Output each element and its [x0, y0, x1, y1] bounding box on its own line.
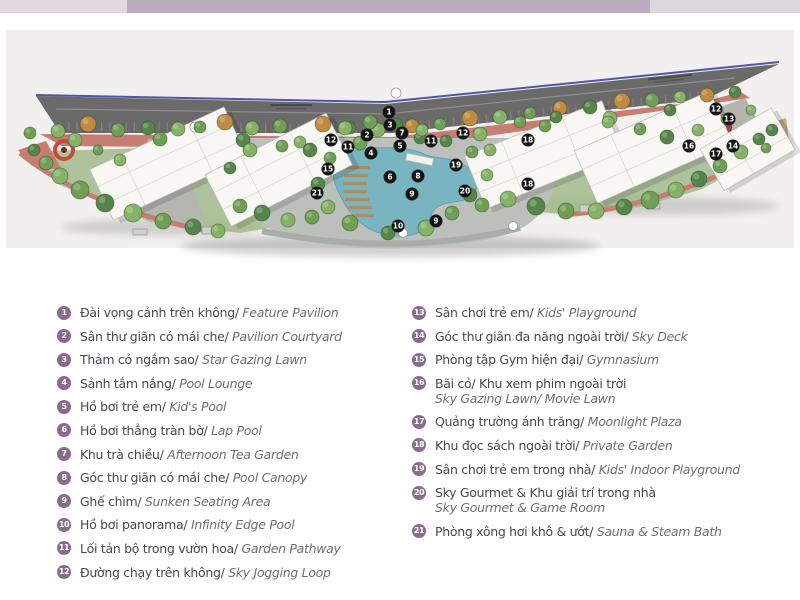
- legend-item-number: 5: [57, 400, 71, 414]
- legend-item: 19Sân chơi trẻ em trong nhà/ Kids' Indoo…: [412, 462, 764, 477]
- tree-highlight: [604, 118, 609, 123]
- tree-icon: [700, 88, 714, 102]
- legend-item: 7Khu trà chiều/ Afternoon Tea Garden: [57, 447, 409, 462]
- tree-highlight: [247, 123, 252, 128]
- tree-icon: [473, 127, 487, 141]
- tree-highlight: [317, 118, 323, 124]
- legend-item: 2Sân thư giãn có mái che/ Pavilion Court…: [57, 329, 409, 344]
- tree-icon: [80, 116, 96, 132]
- tree-highlight: [187, 221, 193, 227]
- legend-column-right: 13Sân chơi trẻ em/ Kids' Playground14Góc…: [412, 305, 764, 547]
- tree-icon: [28, 144, 40, 156]
- legend-item-label: Sân thư giãn có mái che/ Pavilion Courty…: [80, 329, 342, 344]
- legend-item: 5Hồ bơi trẻ em/ Kid's Pool: [57, 399, 409, 414]
- tree-highlight: [670, 184, 676, 190]
- legend-item-number: 4: [57, 376, 71, 390]
- map-marker-number: 15: [323, 165, 333, 174]
- legend-item: 21Phòng xông hơi khô & ướt/ Sauna & Stea…: [412, 524, 764, 539]
- tree-highlight: [99, 197, 106, 204]
- tree-highlight: [407, 121, 412, 126]
- tree-icon: [111, 123, 125, 137]
- legend-item-number: 2: [57, 329, 71, 343]
- map-marker-number: 17: [711, 150, 721, 159]
- legend-item-number: 16: [412, 376, 426, 390]
- tree-highlight: [82, 118, 88, 124]
- tree-highlight: [468, 148, 473, 153]
- tree-icon: [194, 121, 206, 133]
- tree-highlight: [483, 171, 488, 176]
- map-marker-number: 12: [711, 105, 721, 114]
- legend-item-label: Sảnh tắm nắng/ Pool Lounge: [80, 376, 252, 391]
- tree-icon: [440, 135, 452, 147]
- legend-item: 16Bãi cỏ/ Khu xem phim ngoài trờiSky Gaz…: [412, 376, 764, 406]
- tree-icon: [153, 132, 167, 146]
- legend-item-number: 1: [57, 306, 71, 320]
- tree-highlight: [755, 135, 760, 140]
- tree-highlight: [762, 144, 766, 148]
- tree-highlight: [383, 228, 388, 233]
- tree-highlight: [143, 123, 148, 128]
- legend-item: 6Hồ bơi thẳng tràn bờ/ Lap Pool: [57, 423, 409, 438]
- legend-item-number: 14: [412, 329, 426, 343]
- tree-highlight: [694, 126, 699, 131]
- tree-icon: [766, 124, 778, 136]
- legend-item: 4Sảnh tắm nắng/ Pool Lounge: [57, 376, 409, 391]
- tree-icon: [466, 146, 478, 158]
- legend-item: 12Đường chạy trên không/ Sky Jogging Loo…: [57, 565, 409, 580]
- tree-icon: [692, 124, 704, 136]
- tree-highlight: [502, 193, 508, 199]
- tree-highlight: [747, 106, 751, 110]
- map-marker-number: 19: [451, 161, 461, 170]
- tree-icon: [664, 104, 676, 116]
- tree-highlight: [30, 146, 35, 151]
- tree-icon: [668, 182, 684, 198]
- tree-icon: [315, 116, 331, 132]
- tree-icon: [224, 162, 236, 174]
- tree-icon: [243, 143, 257, 157]
- legend-item-label: Đường chạy trên không/ Sky Jogging Loop: [80, 565, 331, 580]
- legend-column-left: 1Đài vọng cảnh trên không/ Feature Pavil…: [57, 305, 409, 588]
- tree-icon: [155, 213, 171, 229]
- tree-highlight: [662, 132, 667, 137]
- tree-icon: [761, 143, 771, 153]
- map-marker-number: 8: [415, 172, 420, 181]
- map-marker-number: 10: [393, 222, 403, 231]
- tree-highlight: [702, 90, 707, 95]
- tree-highlight: [26, 129, 31, 134]
- tree-icon: [39, 156, 53, 170]
- tree-icon: [141, 121, 155, 135]
- tree-highlight: [530, 200, 537, 207]
- tree-icon: [416, 124, 428, 136]
- map-marker-number: 2: [364, 131, 369, 140]
- tree-highlight: [296, 138, 301, 143]
- tree-highlight: [326, 154, 331, 159]
- legend-item: 10Hồ bơi panorama/ Infinity Edge Pool: [57, 517, 409, 532]
- tree-icon: [660, 130, 674, 144]
- tree-icon: [185, 219, 201, 235]
- legend-item-label: Hồ bơi thẳng tràn bờ/ Lap Pool: [80, 423, 262, 438]
- legend-item-label: Đài vọng cảnh trên không/ Feature Pavili…: [80, 305, 338, 320]
- tree-highlight: [636, 125, 641, 130]
- tree-highlight: [155, 134, 160, 139]
- tree-icon: [93, 145, 103, 155]
- tree-highlight: [245, 145, 250, 150]
- tree-icon: [527, 197, 545, 215]
- map-marker-number: 18: [523, 136, 533, 145]
- legend-item-label: Khu trà chiều/ Afternoon Tea Garden: [80, 447, 299, 462]
- tree-highlight: [355, 138, 360, 143]
- tree-icon: [462, 110, 478, 126]
- tree-highlight: [666, 106, 671, 111]
- tree-icon: [233, 199, 247, 213]
- legend-item-number: 13: [412, 306, 426, 320]
- map-marker-number: 6: [387, 173, 392, 182]
- tree-icon: [558, 203, 574, 219]
- tree-highlight: [113, 125, 118, 130]
- legend-item-label: Phòng tập Gym hiện đại/ Gymnasium: [435, 352, 659, 367]
- legend-item: 9Ghế chìm/ Sunken Seating Area: [57, 494, 409, 509]
- tree-highlight: [618, 201, 624, 207]
- tree-icon: [338, 121, 352, 135]
- legend-item-label: Quảng trường ánh trăng/ Moonlight Plaza: [435, 414, 682, 429]
- tree-icon: [342, 215, 358, 231]
- tree-icon: [445, 206, 459, 220]
- tree-icon: [713, 159, 727, 173]
- tree-icon: [281, 213, 295, 227]
- tree-highlight: [693, 173, 699, 179]
- tree-icon: [753, 133, 765, 145]
- tree-icon: [321, 200, 335, 214]
- tree-icon: [539, 120, 551, 132]
- legend-item-number: 9: [57, 494, 71, 508]
- legend-item-label: Lối tản bộ trong vườn hoa/ Garden Pathwa…: [80, 541, 341, 556]
- tree-icon: [96, 194, 114, 212]
- legend-item-label: Sky Gourmet & Khu giải trí trong nhàSky …: [435, 485, 656, 515]
- tree-icon: [524, 107, 536, 119]
- legend-item-number: 10: [57, 518, 71, 532]
- tree-highlight: [196, 123, 201, 128]
- tree-highlight: [526, 109, 531, 114]
- legend-item-label: Góc thư giãn đa năng ngoài trời/ Sky Dec…: [435, 329, 687, 344]
- tree-highlight: [516, 118, 521, 123]
- tree-icon: [68, 133, 82, 147]
- tree-highlight: [238, 135, 243, 140]
- tree-highlight: [41, 158, 46, 163]
- legend-item-label: Phòng xông hơi khô & ướt/ Sauna & Steam …: [435, 524, 722, 539]
- tree-highlight: [644, 194, 651, 201]
- legend-item: 11Lối tản bộ trong vườn hoa/ Garden Path…: [57, 541, 409, 556]
- tree-highlight: [94, 146, 98, 150]
- tree-icon: [484, 144, 496, 156]
- tree-highlight: [275, 121, 280, 126]
- tree-icon: [614, 93, 630, 109]
- road-label-smudge: [270, 104, 312, 106]
- tree-highlight: [616, 95, 622, 101]
- tree-highlight: [283, 215, 288, 220]
- tree-icon: [588, 203, 604, 219]
- tree-icon: [729, 86, 741, 98]
- tree-icon: [691, 171, 707, 187]
- tree-highlight: [731, 88, 736, 93]
- legend-item-number: 19: [412, 462, 426, 476]
- tree-highlight: [464, 112, 470, 118]
- tree-highlight: [475, 129, 480, 134]
- legend-item-number: 21: [412, 524, 426, 538]
- map-marker-number: 5: [397, 142, 402, 151]
- legend-item: 18Khu đọc sách ngoài trời/ Private Garde…: [412, 438, 764, 453]
- tree-icon: [171, 122, 185, 136]
- tree-highlight: [486, 146, 491, 151]
- legend-item-label: Sân chơi trẻ em trong nhà/ Kids' Indoor …: [435, 462, 740, 477]
- tree-icon: [616, 199, 632, 215]
- map-marker-number: 11: [426, 137, 436, 146]
- tree-icon: [211, 224, 225, 238]
- map-marker-number: 1: [386, 108, 391, 117]
- legend-item-number: 15: [412, 353, 426, 367]
- tree-highlight: [213, 226, 218, 231]
- tree-highlight: [307, 212, 312, 217]
- map-marker-number: 12: [326, 136, 336, 145]
- tree-highlight: [226, 164, 231, 169]
- tree-icon: [276, 140, 288, 152]
- legend-item: 13Sân chơi trẻ em/ Kids' Playground: [412, 305, 764, 320]
- legend-item-number: 6: [57, 423, 71, 437]
- legend-item-label: Ghế chìm/ Sunken Seating Area: [80, 494, 270, 509]
- map-marker-number: 16: [684, 142, 694, 151]
- tree-highlight: [555, 103, 560, 108]
- tree-highlight: [256, 207, 262, 213]
- tree-icon: [746, 105, 756, 115]
- tree-icon: [602, 116, 614, 128]
- legend-item-number: 8: [57, 471, 71, 485]
- legend-item-label: Sân chơi trẻ em/ Kids' Playground: [435, 305, 636, 320]
- tree-icon: [52, 168, 68, 184]
- tree-highlight: [436, 120, 441, 125]
- tree-highlight: [442, 137, 447, 142]
- tree-icon: [24, 127, 36, 139]
- map-marker-number: 11: [343, 143, 353, 152]
- map-marker-number: 13: [724, 115, 734, 124]
- tree-icon: [500, 191, 516, 207]
- tree-highlight: [344, 217, 350, 223]
- tree-highlight: [676, 93, 681, 98]
- map-marker-number: 9: [433, 217, 438, 226]
- tree-highlight: [477, 200, 482, 205]
- tree-highlight: [447, 208, 452, 213]
- tree-icon: [475, 198, 489, 212]
- tree-highlight: [768, 126, 773, 131]
- tree-highlight: [585, 102, 590, 107]
- legend-item-label: Bãi cỏ/ Khu xem phim ngoài trờiSky Gazin…: [435, 376, 626, 406]
- map-marker-number: 18: [523, 180, 533, 189]
- tree-highlight: [495, 112, 500, 117]
- tree-highlight: [219, 116, 225, 122]
- legend-item-label: Khu đọc sách ngoài trời/ Private Garden: [435, 438, 672, 453]
- tree-highlight: [418, 126, 423, 131]
- tree-highlight: [305, 145, 310, 150]
- tree-highlight: [647, 95, 652, 100]
- tree-highlight: [420, 222, 426, 228]
- map-marker-number: 20: [460, 187, 470, 196]
- tree-highlight: [70, 135, 75, 140]
- tree-icon: [124, 204, 142, 222]
- tree-icon: [114, 154, 126, 166]
- tree-icon: [51, 124, 65, 138]
- legend-item-number: 11: [57, 541, 71, 555]
- tree-icon: [583, 100, 597, 114]
- legend-item: 15Phòng tập Gym hiện đại/ Gymnasium: [412, 352, 764, 367]
- tree-highlight: [235, 201, 240, 206]
- tree-icon: [645, 93, 659, 107]
- map-marker-number: 9: [409, 190, 414, 199]
- legend-item-number: 12: [57, 565, 71, 579]
- tree-highlight: [74, 184, 81, 191]
- tree-highlight: [173, 124, 178, 129]
- tree-icon: [305, 210, 319, 224]
- tree-highlight: [157, 215, 163, 221]
- tree-highlight: [365, 117, 370, 122]
- legend-item-number: 7: [57, 447, 71, 461]
- tree-highlight: [541, 122, 546, 127]
- tree-icon: [634, 123, 646, 135]
- tree-highlight: [313, 179, 318, 184]
- tree-icon: [481, 169, 493, 181]
- tree-icon: [641, 191, 659, 209]
- legend-item-number: 3: [57, 353, 71, 367]
- tree-icon: [493, 110, 507, 124]
- tree-highlight: [340, 123, 345, 128]
- legend-item-label: Góc thư giãn có mái che/ Pool Canopy: [80, 470, 307, 485]
- legend-item: 1Đài vọng cảnh trên không/ Feature Pavil…: [57, 305, 409, 320]
- map-marker-number: 4: [368, 149, 373, 158]
- tree-highlight: [54, 170, 60, 176]
- tree-highlight: [53, 126, 58, 131]
- legend-item-number: 20: [412, 486, 426, 500]
- tree-icon: [324, 152, 336, 164]
- legend-item-number: 17: [412, 415, 426, 429]
- legend-item: 17Quảng trường ánh trăng/ Moonlight Plaz…: [412, 414, 764, 429]
- tree-highlight: [116, 156, 121, 161]
- tree-highlight: [323, 202, 328, 207]
- map-marker-number: 7: [399, 129, 404, 138]
- tree-icon: [514, 116, 526, 128]
- tree-icon: [674, 91, 686, 103]
- legend-item-label: Hồ bơi trẻ em/ Kid's Pool: [80, 399, 226, 414]
- tree-icon: [217, 114, 233, 130]
- tree-highlight: [590, 205, 596, 211]
- legend-item: 3Thảm cỏ ngắm sao/ Star Gazing Lawn: [57, 352, 409, 367]
- tree-icon: [245, 121, 259, 135]
- tree-icon: [303, 143, 317, 157]
- tree-icon: [254, 205, 270, 221]
- legend-item: 20Sky Gourmet & Khu giải trí trong nhàSk…: [412, 485, 764, 515]
- legend-item: 8Góc thư giãn có mái che/ Pool Canopy: [57, 470, 409, 485]
- tree-highlight: [127, 207, 134, 214]
- tree-icon: [363, 115, 377, 129]
- map-marker-number: 12: [458, 129, 468, 138]
- map-marker-number: 21: [312, 189, 322, 198]
- tree-icon: [71, 181, 89, 199]
- map-marker-number: 3: [387, 121, 392, 130]
- legend-item-label: Thảm cỏ ngắm sao/ Star Gazing Lawn: [80, 352, 307, 367]
- legend-item: 14Góc thư giãn đa năng ngoài trời/ Sky D…: [412, 329, 764, 344]
- tree-highlight: [560, 205, 566, 211]
- legend-item-label: Hồ bơi panorama/ Infinity Edge Pool: [80, 517, 294, 532]
- map-marker-number: 14: [728, 142, 738, 151]
- legend-item-number: 18: [412, 438, 426, 452]
- tree-highlight: [715, 161, 720, 166]
- tree-icon: [550, 111, 562, 123]
- tree-icon: [434, 118, 446, 130]
- tree-highlight: [278, 142, 283, 147]
- tree-highlight: [552, 113, 557, 118]
- tree-icon: [273, 119, 287, 133]
